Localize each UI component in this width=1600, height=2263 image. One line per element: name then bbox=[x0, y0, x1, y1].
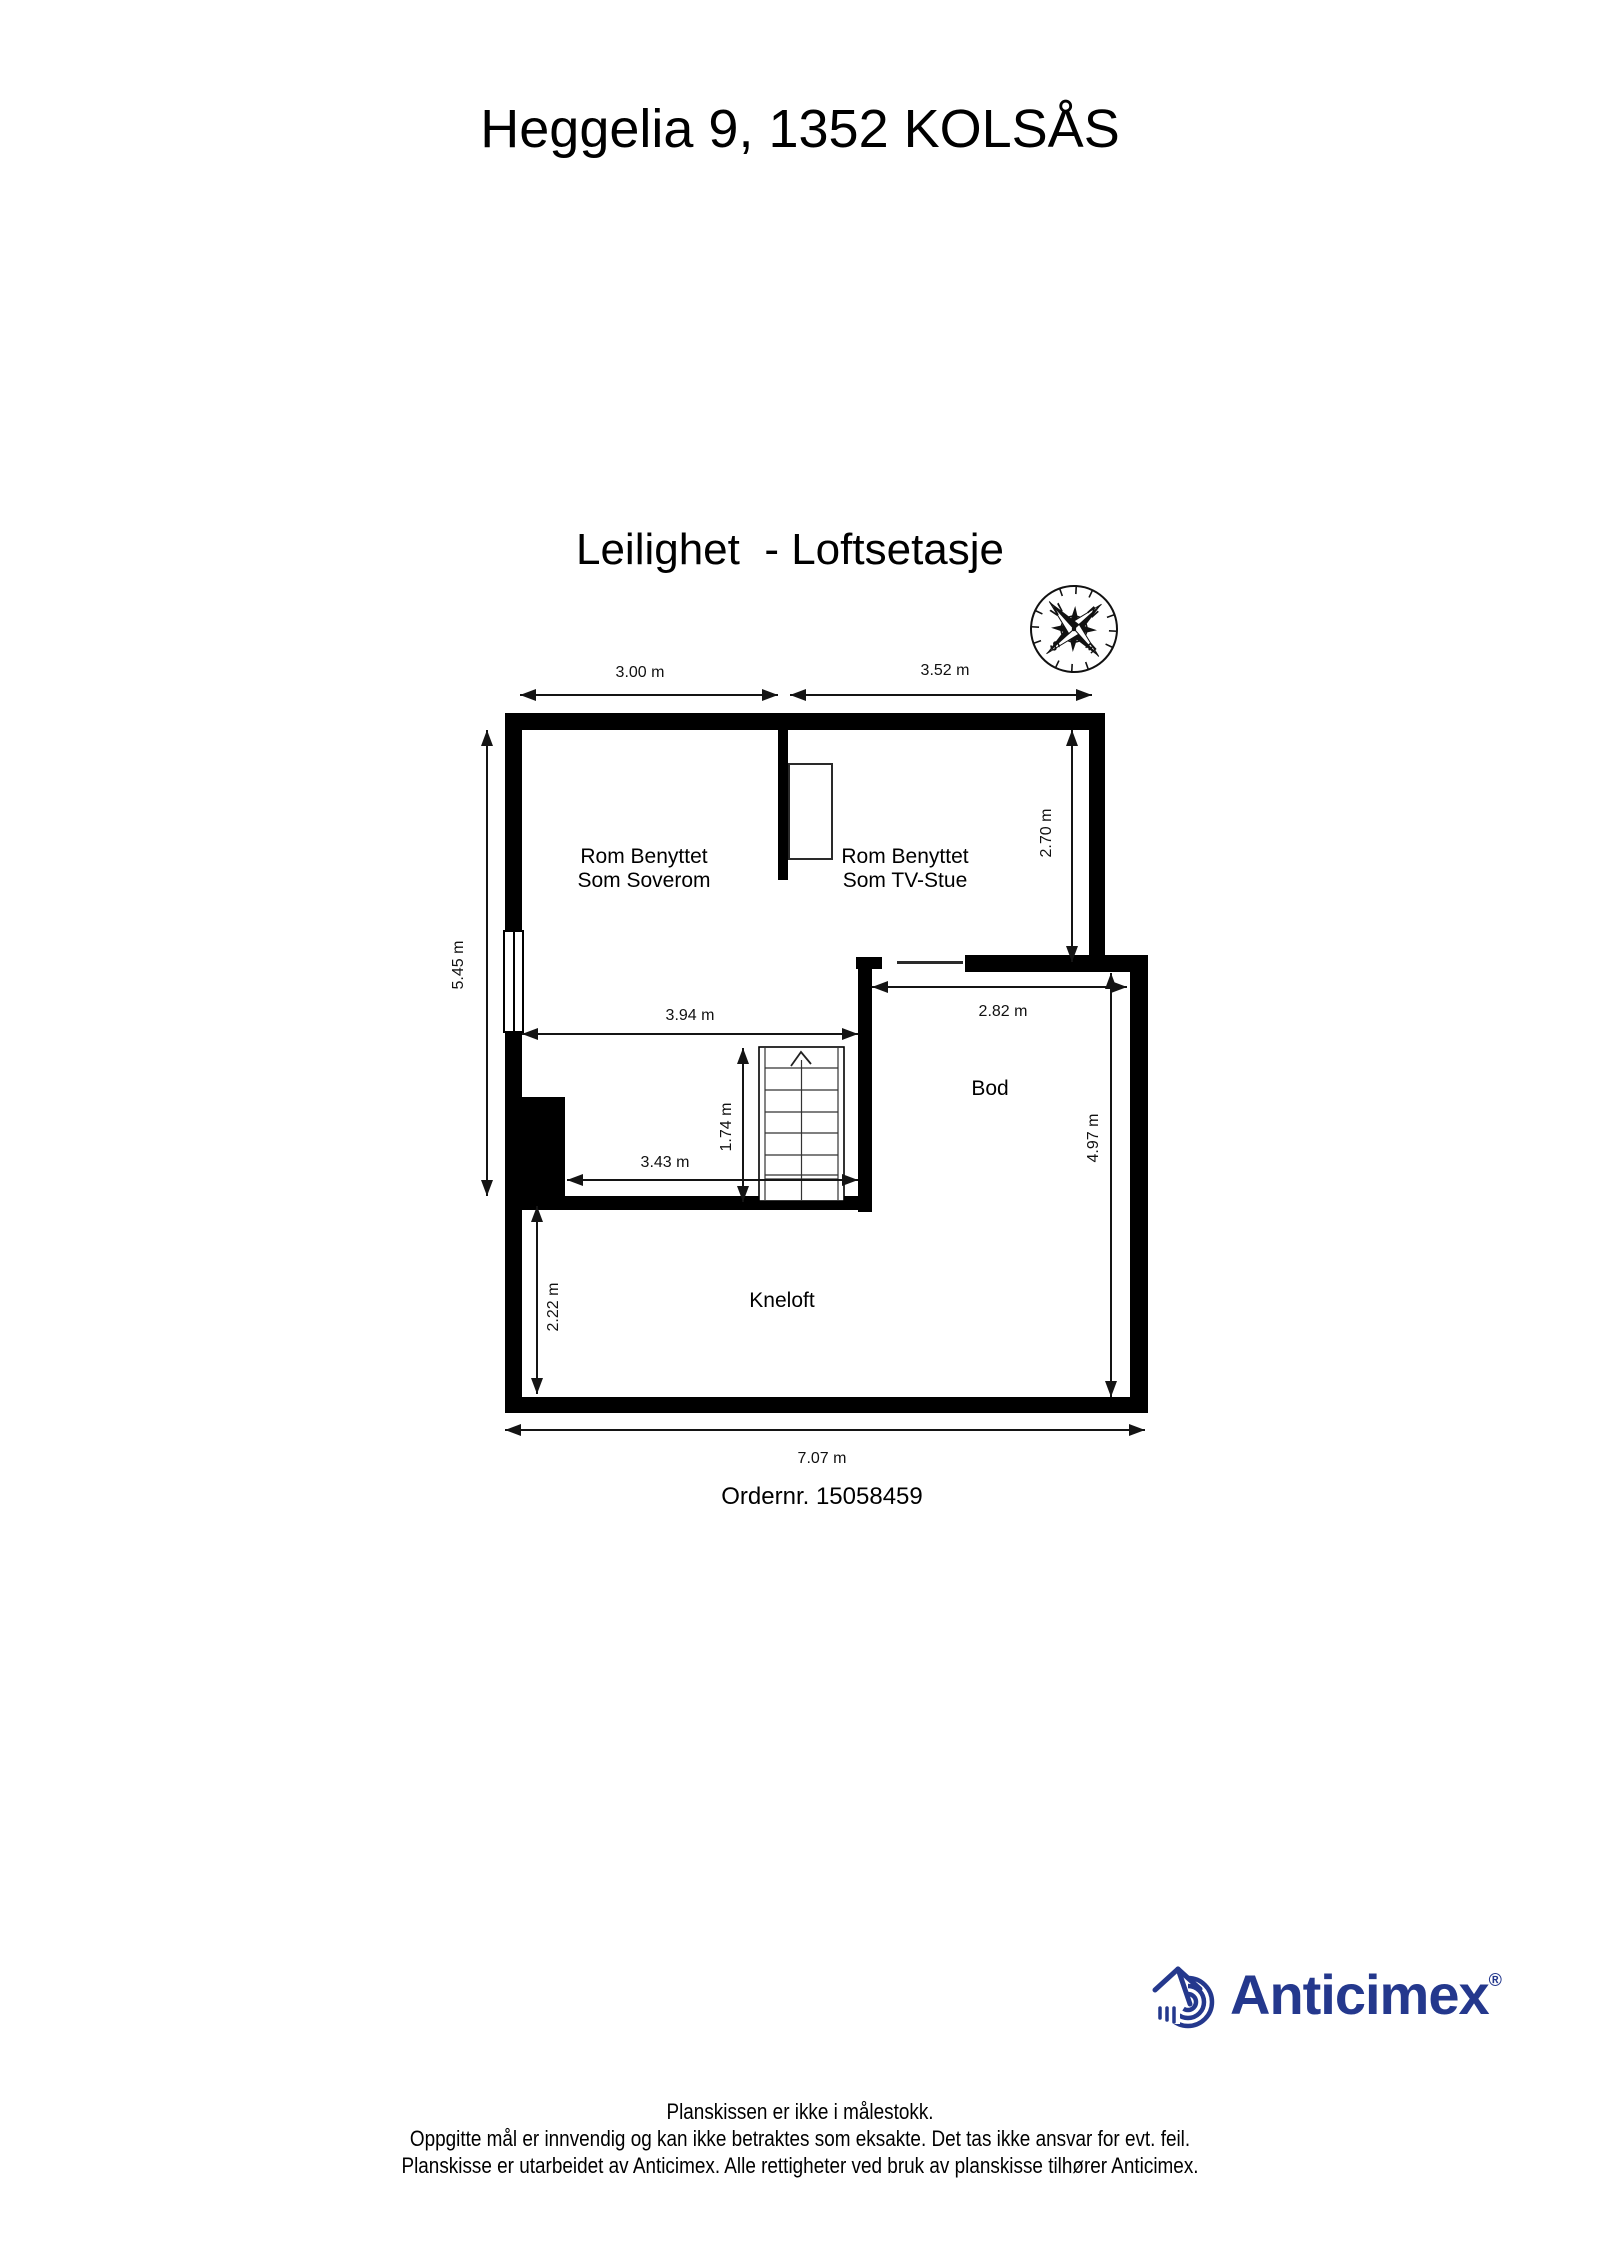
room-label-tvstue-line1: Rom Benyttet bbox=[841, 845, 968, 869]
dimension-label-h-kneloft: 2.22 m bbox=[545, 1283, 563, 1332]
wall-stair-bod bbox=[858, 962, 872, 1212]
dimension-label-h-stairs: 1.74 m bbox=[718, 1103, 736, 1152]
compass-rose: N E S W bbox=[1028, 583, 1120, 675]
anticimex-logo-mark bbox=[1150, 1962, 1226, 2032]
room-label-soverom-line1: Rom Benyttet bbox=[577, 845, 710, 869]
dimension-line-w-inner bbox=[522, 1033, 858, 1035]
dimension-line-h-left bbox=[486, 730, 488, 1196]
room-label-kneloft: Kneloft bbox=[749, 1289, 814, 1313]
wall-bod-top bbox=[965, 955, 1148, 972]
footer-line-3: Planskisse er utarbeidet av Anticimex. A… bbox=[401, 2153, 1198, 2179]
window-left-wall bbox=[503, 930, 524, 1033]
dimension-label-w-soverom: 3.00 m bbox=[616, 664, 665, 682]
room-label-tvstue: Rom Benyttet Som TV-Stue bbox=[841, 845, 968, 893]
anticimex-wordmark: Anticimex bbox=[1230, 1963, 1489, 2026]
room-label-soverom: Rom Benyttet Som Soverom bbox=[577, 845, 710, 893]
plan-subtitle: Leilighet - Loftsetasje bbox=[576, 525, 1004, 575]
dimension-label-w-bod: 2.82 m bbox=[979, 1003, 1028, 1021]
dimension-label-w-stair-room: 3.43 m bbox=[641, 1154, 690, 1172]
dimension-line-h-tvstue bbox=[1071, 730, 1073, 962]
chimney-block bbox=[505, 1097, 565, 1210]
dimension-line-h-kneloft bbox=[536, 1206, 538, 1394]
room-label-soverom-line2: Som Soverom bbox=[577, 869, 710, 893]
room-label-bod: Bod bbox=[971, 1077, 1008, 1101]
dimension-line-w-soverom bbox=[520, 694, 778, 696]
dimension-line-h-stairs bbox=[742, 1048, 744, 1202]
order-number: Ordernr. 15058459 bbox=[721, 1483, 922, 1511]
floorplan-page: Heggelia 9, 1352 KOLSÅS Leilighet - Loft… bbox=[0, 0, 1600, 2263]
dimension-line-w-tvstue bbox=[790, 694, 1092, 696]
wall-bottom bbox=[505, 1397, 1148, 1413]
dimension-line-w-total bbox=[505, 1429, 1145, 1431]
dimension-label-h-left: 5.45 m bbox=[450, 941, 468, 990]
dimension-line-w-stair-room bbox=[567, 1179, 858, 1181]
dimension-label-w-total: 7.07 m bbox=[798, 1450, 847, 1468]
wall-top bbox=[505, 713, 1105, 730]
dimension-line-h-bod bbox=[1110, 973, 1112, 1397]
footer-line-1: Planskissen er ikke i målestokk. bbox=[666, 2099, 933, 2125]
cabinet-tvstue bbox=[788, 763, 833, 860]
dimension-label-h-tvstue: 2.70 m bbox=[1038, 809, 1056, 858]
anticimex-logo-text: Anticimex® bbox=[1230, 1962, 1501, 2027]
page-title: Heggelia 9, 1352 KOLSÅS bbox=[480, 98, 1119, 160]
wall-right-upper bbox=[1089, 713, 1105, 972]
dimension-label-h-bod: 4.97 m bbox=[1085, 1114, 1103, 1163]
room-label-tvstue-line2: Som TV-Stue bbox=[841, 869, 968, 893]
dimension-line-w-bod bbox=[872, 986, 1127, 988]
wall-left bbox=[505, 713, 522, 1413]
door-leaf-bod bbox=[897, 961, 963, 964]
wall-right-lower bbox=[1130, 955, 1148, 1413]
dimension-label-w-tvstue: 3.52 m bbox=[921, 662, 970, 680]
wall-partition-soverom-tvstue bbox=[778, 730, 788, 880]
dimension-label-w-inner: 3.94 m bbox=[666, 1007, 715, 1025]
registered-trademark-icon: ® bbox=[1489, 1970, 1501, 1990]
footer-line-2: Oppgitte mål er innvendig og kan ikke be… bbox=[410, 2126, 1190, 2152]
